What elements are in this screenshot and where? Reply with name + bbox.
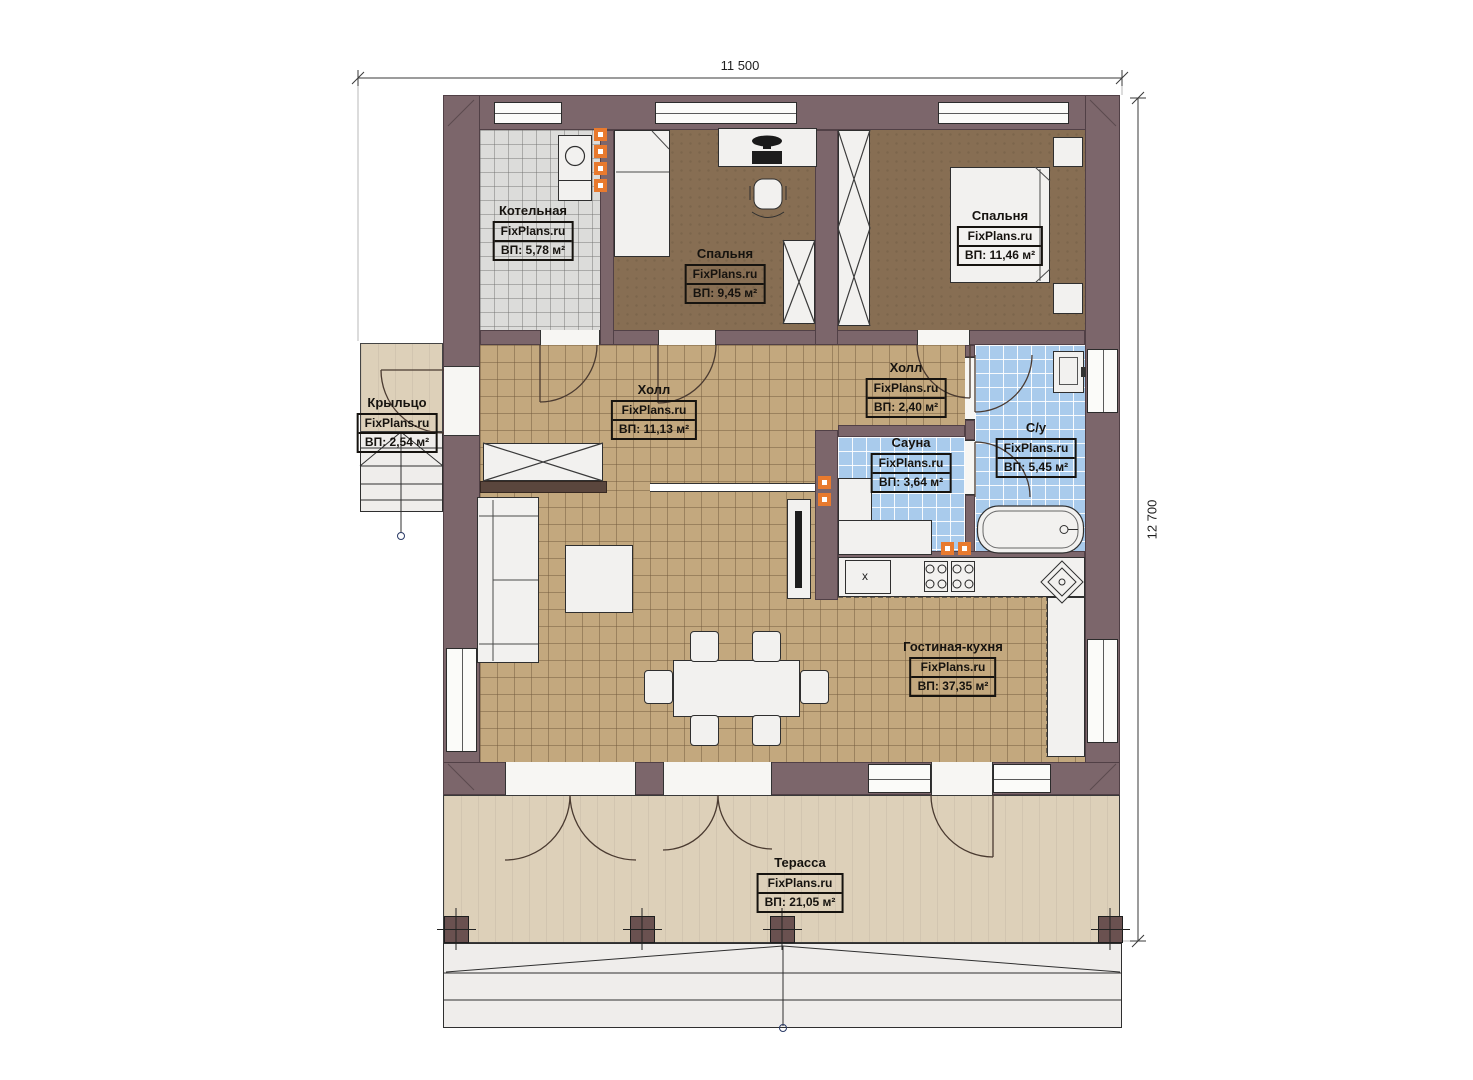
room-name: Гостиная-кухня xyxy=(903,639,1003,654)
office-chair xyxy=(750,179,786,218)
room-area: ВП: 21,05 м² xyxy=(759,892,842,911)
boiler-burner-icon xyxy=(566,147,585,166)
room-area: ВП: 3,64 м² xyxy=(873,472,950,491)
stove-burners-icon xyxy=(926,565,973,588)
room-area: ВП: 2,40 м² xyxy=(868,397,945,416)
room-label-terrace: Терасса FixPlans.ru ВП: 21,05 м² xyxy=(757,855,844,913)
room-label-sauna: Сауна FixPlans.ru ВП: 3,64 м² xyxy=(871,435,952,493)
watermark: FixPlans.ru xyxy=(359,415,436,432)
desk-lamp-icon xyxy=(752,136,782,150)
room-label-bedroom2: Спальня FixPlans.ru ВП: 11,46 м² xyxy=(957,208,1043,266)
room-area: ВП: 2,54 м² xyxy=(359,432,436,451)
room-area: ВП: 37,35 м² xyxy=(912,676,995,695)
watermark: FixPlans.ru xyxy=(959,228,1041,245)
watermark: FixPlans.ru xyxy=(613,402,695,419)
room-name: Спальня xyxy=(685,246,766,261)
sink-tap-icon xyxy=(1081,367,1086,377)
dimension-height: 12 700 xyxy=(1145,490,1160,550)
watermark: FixPlans.ru xyxy=(912,659,995,676)
watermark: FixPlans.ru xyxy=(998,440,1075,457)
room-area: ВП: 11,13 м² xyxy=(613,419,695,438)
terrace-steps-lines xyxy=(443,946,1122,1032)
room-name: Сауна xyxy=(871,435,952,450)
column-ticks xyxy=(437,908,1130,950)
room-label-hall: Холл FixPlans.ru ВП: 11,13 м² xyxy=(611,382,697,440)
room-label-bathroom: С/у FixPlans.ru ВП: 5,45 м² xyxy=(996,420,1077,478)
room-name: Холл xyxy=(611,382,697,397)
room-name: Холл xyxy=(866,360,947,375)
room-name: Крыльцо xyxy=(357,395,438,410)
appliance-marker: х xyxy=(862,569,868,583)
room-area: ВП: 11,46 м² xyxy=(959,245,1041,264)
room-name: Котельная xyxy=(493,203,574,218)
door-arcs xyxy=(381,345,1032,860)
room-label-hall2: Холл FixPlans.ru ВП: 2,40 м² xyxy=(866,360,947,418)
plan-linework xyxy=(0,0,1473,1080)
watermark: FixPlans.ru xyxy=(495,223,572,240)
room-label-living-kitchen: Гостиная-кухня FixPlans.ru ВП: 37,35 м² xyxy=(903,639,1003,697)
room-label-boiler: Котельная FixPlans.ru ВП: 5,78 м² xyxy=(493,203,574,261)
floor-plan: х xyxy=(0,0,1473,1080)
room-label-bedroom1: Спальня FixPlans.ru ВП: 9,45 м² xyxy=(685,246,766,304)
room-name: Спальня xyxy=(957,208,1043,223)
bathtub-icon xyxy=(978,506,1084,553)
watermark: FixPlans.ru xyxy=(759,875,842,892)
watermark: FixPlans.ru xyxy=(868,380,945,397)
watermark: FixPlans.ru xyxy=(687,266,764,283)
room-name: Терасса xyxy=(757,855,844,870)
room-name: С/у xyxy=(996,420,1077,435)
watermark: FixPlans.ru xyxy=(873,455,950,472)
room-area: ВП: 9,45 м² xyxy=(687,283,764,302)
room-area: ВП: 5,45 м² xyxy=(998,457,1075,476)
dimension-width: 11 500 xyxy=(690,58,790,73)
room-label-porch: Крыльцо FixPlans.ru ВП: 2,54 м² xyxy=(357,395,438,453)
room-area: ВП: 5,78 м² xyxy=(495,240,572,259)
